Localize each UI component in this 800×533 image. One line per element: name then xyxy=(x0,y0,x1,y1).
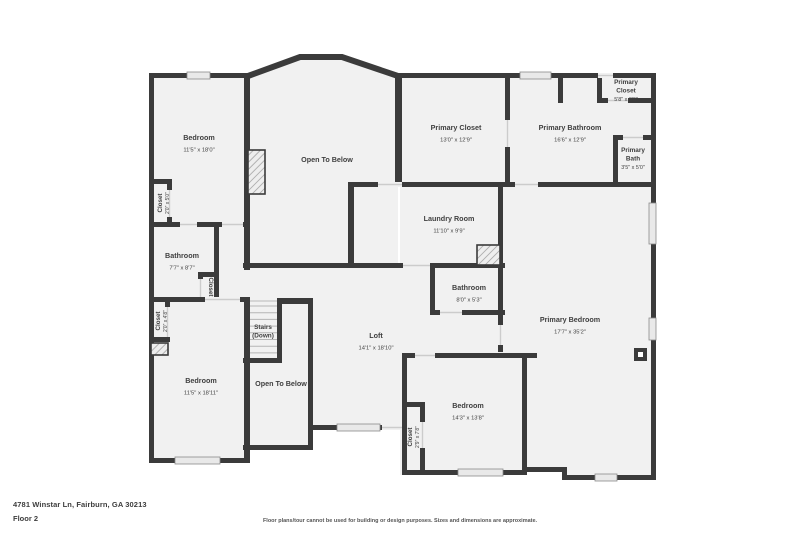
room-label: Closet xyxy=(207,278,214,297)
room-label: Open To Below xyxy=(301,155,353,164)
room-label: PrimaryCloset5'8" x 3'0" xyxy=(614,79,638,103)
address-text: 4781 Winstar Ln, Fairburn, GA 30213 xyxy=(13,500,147,509)
floor-plan-page: Bedroom11'5" x 18'0"Closet2'0" x 5'0"Bat… xyxy=(0,0,800,533)
room-label: Stairs(Down) xyxy=(252,324,274,340)
floor-plan-canvas: Bedroom11'5" x 18'0"Closet2'0" x 5'0"Bat… xyxy=(0,0,800,533)
room-label: Open To Below xyxy=(255,379,307,388)
disclaimer-text: Floor plans/tour cannot be used for buil… xyxy=(0,518,800,524)
